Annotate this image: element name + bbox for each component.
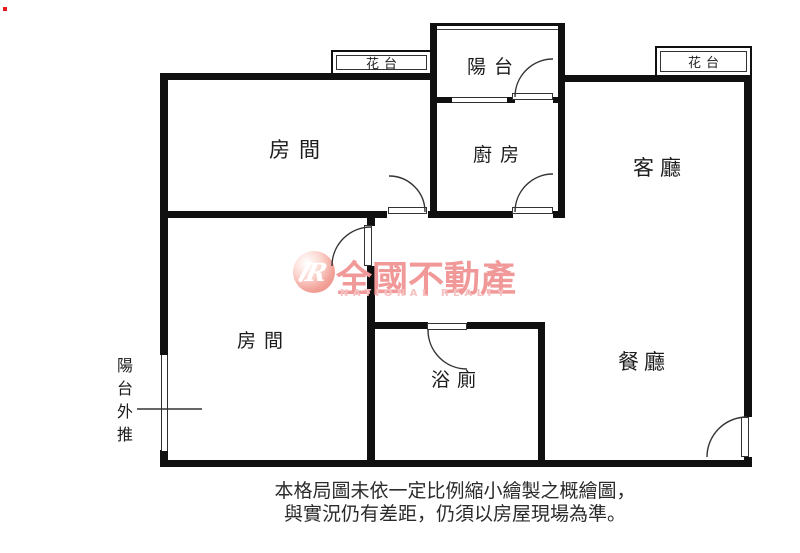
- realty-logo-circle: R: [293, 251, 335, 293]
- wall-segment: [467, 322, 545, 329]
- door-leaf: [364, 225, 372, 266]
- wall-segment: [558, 23, 565, 218]
- balcony-label: 陽台: [467, 52, 521, 79]
- balcony-parapet-inner-line: [437, 29, 558, 30]
- dining-room-label: 餐廳: [618, 346, 670, 376]
- flower-bed-box-right: 花台: [655, 46, 752, 77]
- wall-segment: [538, 322, 545, 467]
- door-leaf: [741, 417, 749, 457]
- bedroom-top-label: 房間: [269, 134, 329, 164]
- disclaimer-line-2: 與實況仍有差距，仍須以房屋現場為準。: [155, 503, 755, 526]
- kitchen-label: 廚房: [473, 140, 527, 167]
- flower-bed-box-left: 花台: [331, 50, 432, 75]
- wall-segment: [553, 211, 565, 218]
- floorplan-page: { "floorplan": { "rooms": { "bedroom_top…: [0, 0, 800, 553]
- flower-bed-right-label: 花台: [683, 52, 724, 71]
- bathroom-label: 浴廁: [431, 365, 483, 392]
- wall-segment: [437, 211, 513, 218]
- wall-segment: [375, 322, 428, 329]
- balcony-parapet: [430, 23, 565, 26]
- wall-segment: [160, 460, 752, 467]
- bedroom-left-label: 房間: [237, 326, 291, 353]
- wall-segment: [430, 73, 437, 218]
- logo-monogram: R: [303, 260, 329, 285]
- watermark-brand-name-en: NATIONAL REALTY: [340, 288, 509, 299]
- wall-segment: [744, 75, 752, 417]
- window: [161, 355, 168, 451]
- door-leaf: [388, 207, 427, 214]
- balcony-extension-label: 陽台外推: [111, 357, 135, 457]
- flower-bed-left-label: 花台: [361, 53, 402, 72]
- door-leaf: [512, 207, 553, 214]
- disclaimer-line-1: 本格局圖未依一定比例縮小繪製之概繪圖，: [155, 480, 755, 503]
- disclaimer-text: 本格局圖未依一定比例縮小繪製之概繪圖， 與實況仍有差距，仍須以房屋現場為準。: [155, 480, 755, 526]
- wall-segment: [437, 97, 452, 103]
- wall-segment: [553, 97, 565, 103]
- living-room-label: 客廳: [633, 152, 687, 182]
- red-dot-artifact: [3, 7, 7, 11]
- door-leaf: [427, 323, 467, 330]
- window: [452, 97, 507, 103]
- wall-segment: [160, 211, 387, 218]
- door-leaf: [512, 93, 553, 100]
